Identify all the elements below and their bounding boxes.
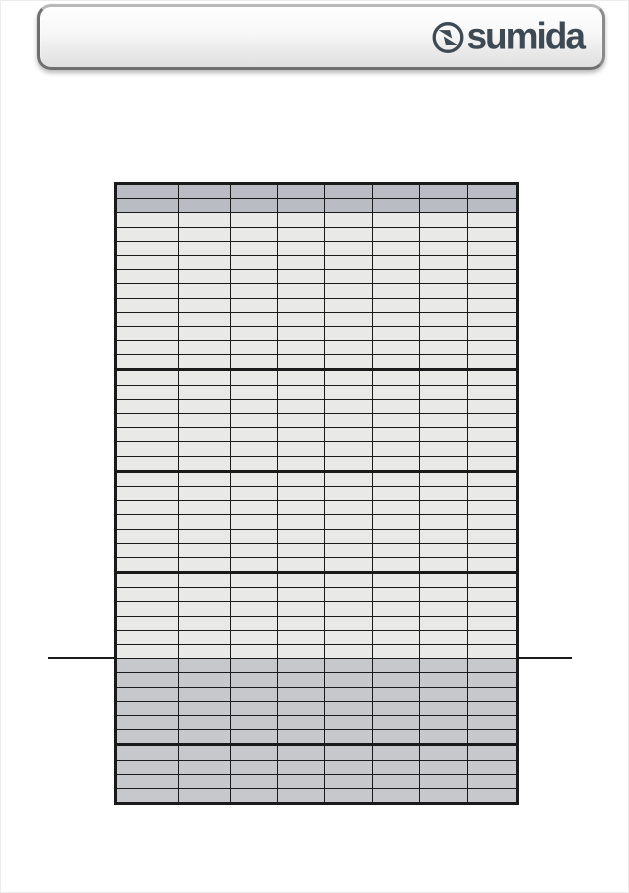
table-cell — [116, 673, 179, 687]
table-cell — [179, 515, 231, 529]
table-cell — [468, 673, 518, 687]
table-row — [116, 774, 518, 788]
table-cell — [278, 326, 325, 340]
table-cell — [179, 213, 231, 227]
table-cell — [116, 355, 179, 370]
table-cell — [278, 529, 325, 543]
table-cell — [179, 241, 231, 255]
table-cell — [325, 659, 373, 673]
table-cell — [278, 788, 325, 803]
table-cell — [116, 630, 179, 644]
table-cell — [468, 788, 518, 803]
table-cell — [231, 312, 278, 326]
table-cell — [231, 399, 278, 413]
table-cell — [179, 414, 231, 428]
table-cell — [231, 428, 278, 442]
table-cell — [420, 471, 468, 486]
table-cell — [325, 326, 373, 340]
table-cell — [420, 760, 468, 774]
table-cell — [325, 573, 373, 588]
table-cell — [116, 573, 179, 588]
table-row — [116, 370, 518, 385]
table-cell — [420, 557, 468, 572]
table-cell — [373, 227, 420, 241]
table-cell — [420, 673, 468, 687]
table-cell — [231, 213, 278, 227]
table-cell — [325, 630, 373, 644]
table-cell — [373, 471, 420, 486]
table-row — [116, 270, 518, 284]
table-cell — [373, 284, 420, 298]
table-cell — [325, 774, 373, 788]
table-cell — [373, 355, 420, 370]
table-cell — [231, 456, 278, 471]
table-cell — [373, 659, 420, 673]
table-cell — [179, 557, 231, 572]
table-row — [116, 529, 518, 543]
table-row — [116, 730, 518, 745]
table-cell — [373, 312, 420, 326]
table-cell — [231, 557, 278, 572]
table-cell — [373, 326, 420, 340]
table-cell — [116, 341, 179, 355]
table-row — [116, 501, 518, 515]
table-cell — [420, 788, 468, 803]
table-cell — [468, 645, 518, 659]
table-cell — [231, 355, 278, 370]
table-cell — [231, 199, 278, 213]
table-cell — [468, 199, 518, 213]
table-row — [116, 659, 518, 673]
table-cell — [373, 184, 420, 199]
table-cell — [278, 414, 325, 428]
table-cell — [278, 774, 325, 788]
table-cell — [468, 760, 518, 774]
table-cell — [420, 486, 468, 500]
table-row — [116, 687, 518, 701]
table-cell — [468, 341, 518, 355]
table-cell — [420, 616, 468, 630]
table-row — [116, 399, 518, 413]
table-cell — [116, 370, 179, 385]
table-row — [116, 471, 518, 486]
table-row — [116, 241, 518, 255]
table-cell — [179, 645, 231, 659]
table-cell — [468, 355, 518, 370]
table-cell — [468, 298, 518, 312]
spec-table — [114, 182, 519, 805]
table-cell — [179, 701, 231, 715]
table-cell — [278, 341, 325, 355]
table-row — [116, 355, 518, 370]
table-cell — [325, 730, 373, 745]
table-cell — [373, 213, 420, 227]
table-cell — [278, 486, 325, 500]
table-cell — [278, 227, 325, 241]
table-cell — [278, 284, 325, 298]
table-cell — [420, 501, 468, 515]
table-cell — [373, 486, 420, 500]
table-row — [116, 515, 518, 529]
table-cell — [278, 687, 325, 701]
table-cell — [420, 399, 468, 413]
table-cell — [231, 227, 278, 241]
table-cell — [278, 501, 325, 515]
table-row — [116, 630, 518, 644]
table-cell — [468, 588, 518, 602]
table-cell — [325, 515, 373, 529]
table-row — [116, 760, 518, 774]
table-cell — [373, 687, 420, 701]
table-cell — [325, 745, 373, 760]
table-cell — [179, 471, 231, 486]
table-cell — [420, 428, 468, 442]
table-cell — [278, 199, 325, 213]
table-cell — [116, 399, 179, 413]
table-cell — [325, 501, 373, 515]
table-cell — [373, 298, 420, 312]
table-cell — [179, 588, 231, 602]
table-cell — [116, 456, 179, 471]
table-cell — [278, 673, 325, 687]
table-row — [116, 213, 518, 227]
table-cell — [116, 414, 179, 428]
table-cell — [116, 428, 179, 442]
table-cell — [278, 543, 325, 557]
table-cell — [325, 184, 373, 199]
table-cell — [278, 745, 325, 760]
table-cell — [325, 298, 373, 312]
table-cell — [373, 573, 420, 588]
table-cell — [420, 573, 468, 588]
table-cell — [373, 774, 420, 788]
table-cell — [278, 270, 325, 284]
table-cell — [325, 557, 373, 572]
table-cell — [179, 312, 231, 326]
table-cell — [420, 687, 468, 701]
table-row — [116, 616, 518, 630]
table-cell — [278, 184, 325, 199]
spec-table-body — [116, 184, 518, 804]
table-cell — [325, 385, 373, 399]
table-cell — [325, 456, 373, 471]
table-cell — [420, 515, 468, 529]
table-cell — [116, 270, 179, 284]
table-cell — [373, 602, 420, 616]
table-row — [116, 284, 518, 298]
table-cell — [325, 414, 373, 428]
table-cell — [231, 687, 278, 701]
table-cell — [179, 760, 231, 774]
table-cell — [116, 760, 179, 774]
table-cell — [116, 687, 179, 701]
table-row — [116, 715, 518, 729]
table-cell — [325, 471, 373, 486]
table-cell — [420, 442, 468, 456]
table-cell — [373, 673, 420, 687]
table-cell — [231, 298, 278, 312]
table-cell — [420, 456, 468, 471]
table-cell — [231, 486, 278, 500]
table-cell — [116, 701, 179, 715]
table-cell — [231, 501, 278, 515]
table-cell — [468, 701, 518, 715]
table-cell — [420, 355, 468, 370]
table-row — [116, 486, 518, 500]
table-cell — [278, 312, 325, 326]
table-cell — [325, 199, 373, 213]
table-cell — [116, 616, 179, 630]
table-cell — [468, 715, 518, 729]
table-cell — [179, 715, 231, 729]
table-cell — [231, 442, 278, 456]
table-cell — [179, 399, 231, 413]
table-cell — [468, 241, 518, 255]
table-cell — [179, 501, 231, 515]
table-row — [116, 673, 518, 687]
table-cell — [179, 370, 231, 385]
table-cell — [116, 298, 179, 312]
table-cell — [420, 370, 468, 385]
sumida-logo: sumida — [431, 19, 584, 56]
table-cell — [179, 199, 231, 213]
table-cell — [231, 326, 278, 340]
table-cell — [116, 199, 179, 213]
table-cell — [325, 442, 373, 456]
table-cell — [468, 616, 518, 630]
table-cell — [116, 284, 179, 298]
table-cell — [325, 687, 373, 701]
table-cell — [116, 774, 179, 788]
table-cell — [231, 370, 278, 385]
table-cell — [468, 284, 518, 298]
table-cell — [420, 284, 468, 298]
table-cell — [468, 399, 518, 413]
table-cell — [420, 701, 468, 715]
table-cell — [278, 588, 325, 602]
table-cell — [373, 760, 420, 774]
table-cell — [373, 370, 420, 385]
table-cell — [420, 270, 468, 284]
table-cell — [179, 602, 231, 616]
table-cell — [231, 630, 278, 644]
table-cell — [278, 573, 325, 588]
table-cell — [373, 745, 420, 760]
table-cell — [116, 501, 179, 515]
table-cell — [231, 701, 278, 715]
table-cell — [179, 255, 231, 269]
table-row — [116, 645, 518, 659]
table-row — [116, 602, 518, 616]
table-cell — [116, 557, 179, 572]
table-cell — [325, 588, 373, 602]
table-cell — [373, 557, 420, 572]
table-cell — [420, 602, 468, 616]
table-cell — [325, 529, 373, 543]
table-cell — [179, 284, 231, 298]
table-cell — [179, 616, 231, 630]
table-cell — [373, 788, 420, 803]
table-cell — [179, 385, 231, 399]
table-cell — [420, 630, 468, 644]
table-row — [116, 745, 518, 760]
table-cell — [278, 442, 325, 456]
table-cell — [468, 529, 518, 543]
table-cell — [420, 255, 468, 269]
table-cell — [373, 341, 420, 355]
table-cell — [468, 687, 518, 701]
table-row — [116, 255, 518, 269]
table-cell — [179, 730, 231, 745]
table-cell — [373, 529, 420, 543]
table-cell — [373, 255, 420, 269]
table-cell — [231, 602, 278, 616]
table-cell — [179, 355, 231, 370]
table-cell — [116, 255, 179, 269]
table-cell — [420, 385, 468, 399]
table-cell — [373, 501, 420, 515]
table-cell — [325, 270, 373, 284]
table-cell — [179, 270, 231, 284]
table-cell — [116, 486, 179, 500]
table-cell — [116, 529, 179, 543]
table-cell — [278, 659, 325, 673]
table-cell — [278, 630, 325, 644]
table-cell — [179, 456, 231, 471]
table-cell — [420, 588, 468, 602]
table-cell — [278, 616, 325, 630]
table-cell — [468, 659, 518, 673]
table-cell — [179, 529, 231, 543]
table-cell — [325, 355, 373, 370]
table-row — [116, 184, 518, 199]
table-cell — [325, 788, 373, 803]
table-cell — [325, 312, 373, 326]
table-cell — [231, 341, 278, 355]
sumida-pinwheel-circle-icon — [431, 20, 465, 54]
table-cell — [420, 659, 468, 673]
table-cell — [231, 788, 278, 803]
table-cell — [179, 442, 231, 456]
table-cell — [325, 341, 373, 355]
table-cell — [468, 255, 518, 269]
table-cell — [278, 760, 325, 774]
table-cell — [179, 573, 231, 588]
table-cell — [179, 326, 231, 340]
table-cell — [373, 442, 420, 456]
table-row — [116, 588, 518, 602]
table-cell — [373, 515, 420, 529]
table-cell — [420, 227, 468, 241]
table-cell — [116, 745, 179, 760]
table-cell — [468, 602, 518, 616]
table-cell — [116, 659, 179, 673]
table-cell — [278, 370, 325, 385]
table-cell — [116, 715, 179, 729]
table-row — [116, 341, 518, 355]
table-cell — [373, 385, 420, 399]
table-cell — [278, 385, 325, 399]
table-cell — [231, 184, 278, 199]
table-cell — [468, 501, 518, 515]
table-cell — [278, 515, 325, 529]
table-cell — [116, 312, 179, 326]
table-cell — [179, 659, 231, 673]
table-cell — [373, 616, 420, 630]
table-cell — [325, 486, 373, 500]
table-row — [116, 573, 518, 588]
table-cell — [468, 385, 518, 399]
table-cell — [231, 588, 278, 602]
table-cell — [116, 543, 179, 557]
table-cell — [179, 687, 231, 701]
table-cell — [420, 298, 468, 312]
table-cell — [278, 471, 325, 486]
table-cell — [325, 543, 373, 557]
table-row — [116, 428, 518, 442]
table-cell — [468, 442, 518, 456]
table-cell — [325, 616, 373, 630]
table-cell — [231, 645, 278, 659]
table-cell — [231, 414, 278, 428]
table-cell — [278, 355, 325, 370]
table-cell — [468, 471, 518, 486]
table-cell — [325, 241, 373, 255]
table-cell — [231, 543, 278, 557]
table-cell — [116, 213, 179, 227]
table-cell — [420, 645, 468, 659]
table-row — [116, 298, 518, 312]
table-cell — [179, 774, 231, 788]
table-cell — [373, 414, 420, 428]
table-cell — [325, 673, 373, 687]
table-row — [116, 557, 518, 572]
table-cell — [420, 199, 468, 213]
table-cell — [468, 326, 518, 340]
table-cell — [325, 701, 373, 715]
table-cell — [179, 543, 231, 557]
table-cell — [231, 730, 278, 745]
table-cell — [468, 227, 518, 241]
table-cell — [278, 715, 325, 729]
table-cell — [278, 298, 325, 312]
table-cell — [468, 543, 518, 557]
table-row — [116, 442, 518, 456]
table-cell — [373, 701, 420, 715]
table-cell — [373, 645, 420, 659]
table-cell — [325, 715, 373, 729]
table-cell — [373, 456, 420, 471]
table-cell — [373, 543, 420, 557]
table-cell — [231, 385, 278, 399]
table-cell — [468, 745, 518, 760]
table-cell — [116, 227, 179, 241]
table-cell — [179, 673, 231, 687]
table-cell — [231, 715, 278, 729]
table-cell — [420, 312, 468, 326]
table-cell — [420, 326, 468, 340]
table-cell — [325, 255, 373, 269]
table-row — [116, 701, 518, 715]
table-cell — [116, 184, 179, 199]
table-cell — [278, 701, 325, 715]
table-cell — [420, 715, 468, 729]
table-cell — [420, 414, 468, 428]
table-cell — [231, 284, 278, 298]
table-cell — [468, 730, 518, 745]
table-cell — [278, 456, 325, 471]
table-cell — [420, 213, 468, 227]
